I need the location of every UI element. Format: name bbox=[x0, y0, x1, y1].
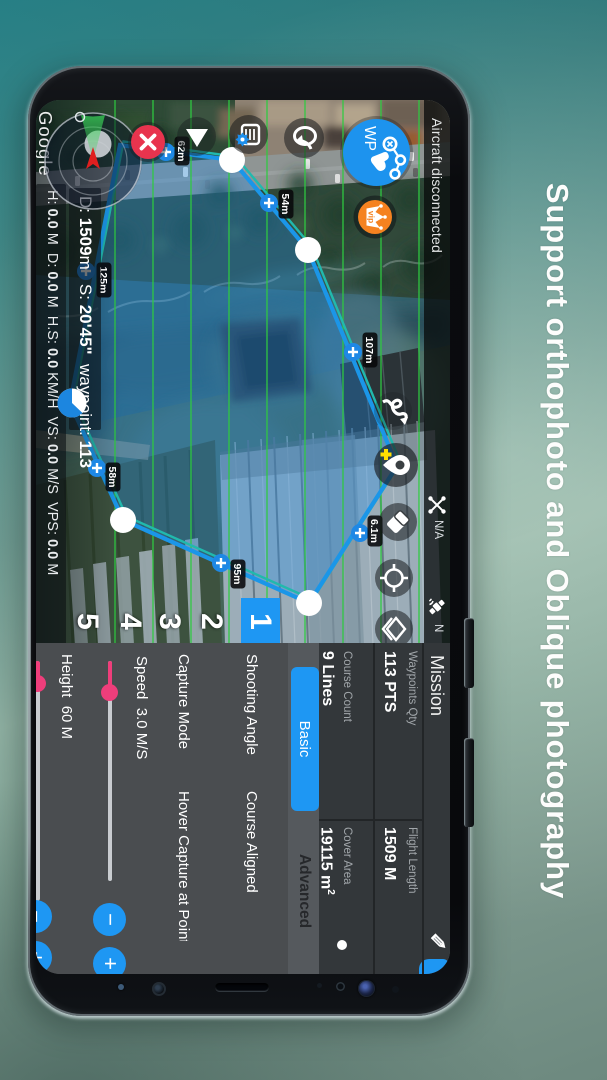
svg-text:58m: 58m bbox=[106, 466, 118, 487]
svg-text:vip: vip bbox=[367, 211, 377, 223]
svg-text:54m: 54m bbox=[279, 193, 291, 214]
svg-text:95m: 95m bbox=[231, 563, 243, 584]
svg-text:107m: 107m bbox=[363, 337, 375, 364]
